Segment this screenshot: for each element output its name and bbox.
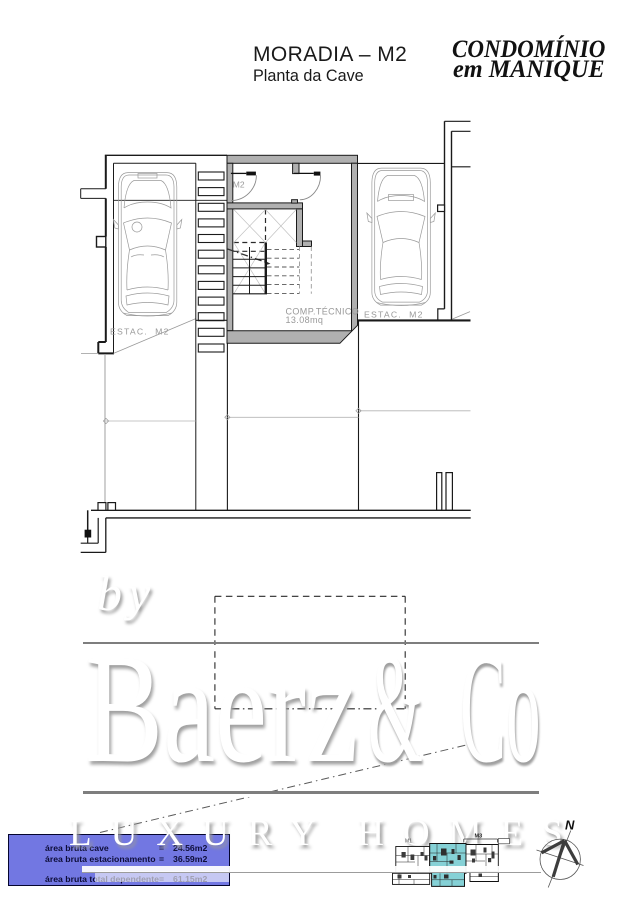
svg-text:M3: M3 (475, 834, 483, 840)
svg-text:M1: M1 (405, 839, 412, 845)
svg-text:N: N (565, 818, 575, 833)
